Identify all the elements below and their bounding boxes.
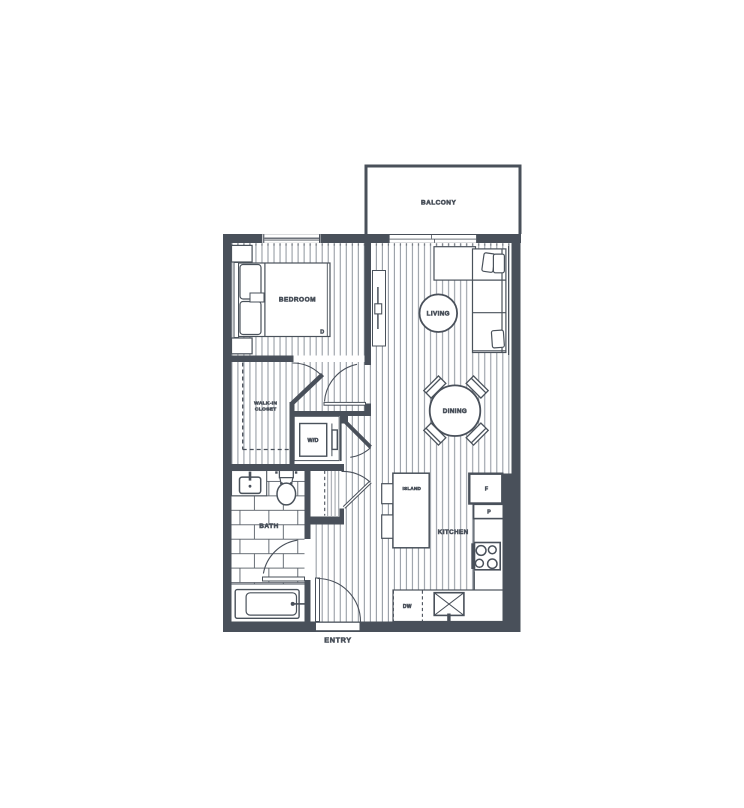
svg-text:W/D: W/D bbox=[307, 438, 318, 444]
svg-text:ISLAND: ISLAND bbox=[402, 486, 421, 491]
svg-text:WALK-IN: WALK-IN bbox=[254, 401, 277, 407]
svg-text:BALCONY: BALCONY bbox=[421, 199, 457, 206]
svg-text:KITCHEN: KITCHEN bbox=[438, 529, 469, 536]
svg-text:BATH: BATH bbox=[259, 523, 279, 530]
svg-text:P: P bbox=[487, 510, 491, 516]
svg-text:LIVING: LIVING bbox=[427, 311, 450, 318]
svg-text:D: D bbox=[320, 329, 324, 335]
svg-text:BEDROOM: BEDROOM bbox=[279, 296, 316, 303]
svg-text:ENTRY: ENTRY bbox=[324, 635, 351, 644]
svg-text:DINING: DINING bbox=[443, 408, 467, 415]
svg-text:DW: DW bbox=[403, 604, 412, 610]
svg-text:F: F bbox=[485, 487, 488, 493]
svg-text:CLOSET: CLOSET bbox=[255, 407, 277, 413]
